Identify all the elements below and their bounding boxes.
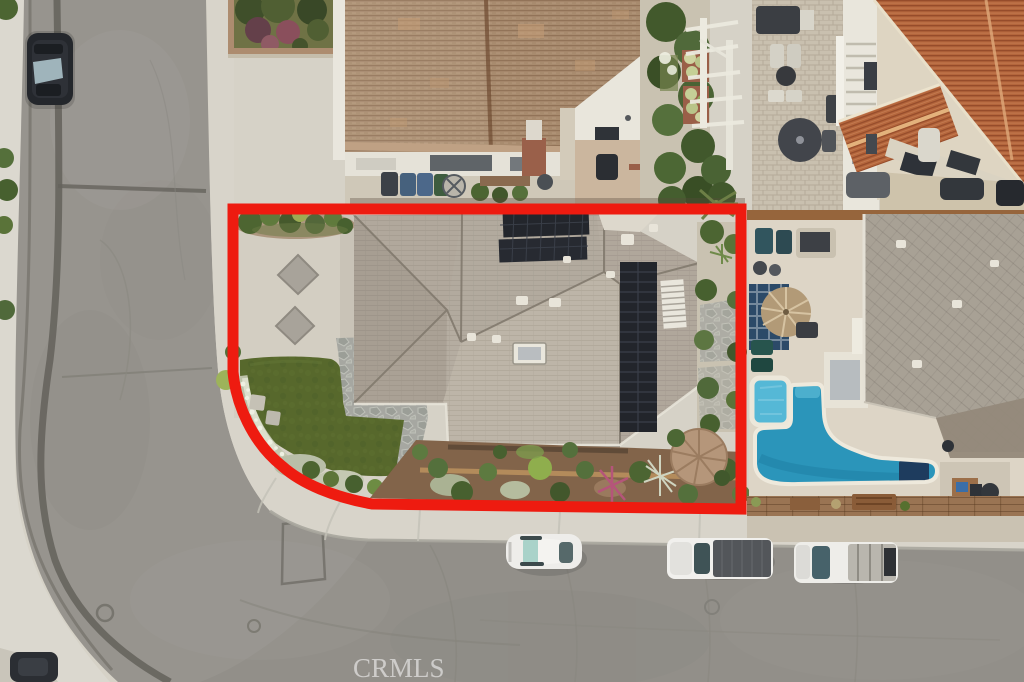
svg-text:CRMLS: CRMLS [353,653,445,682]
